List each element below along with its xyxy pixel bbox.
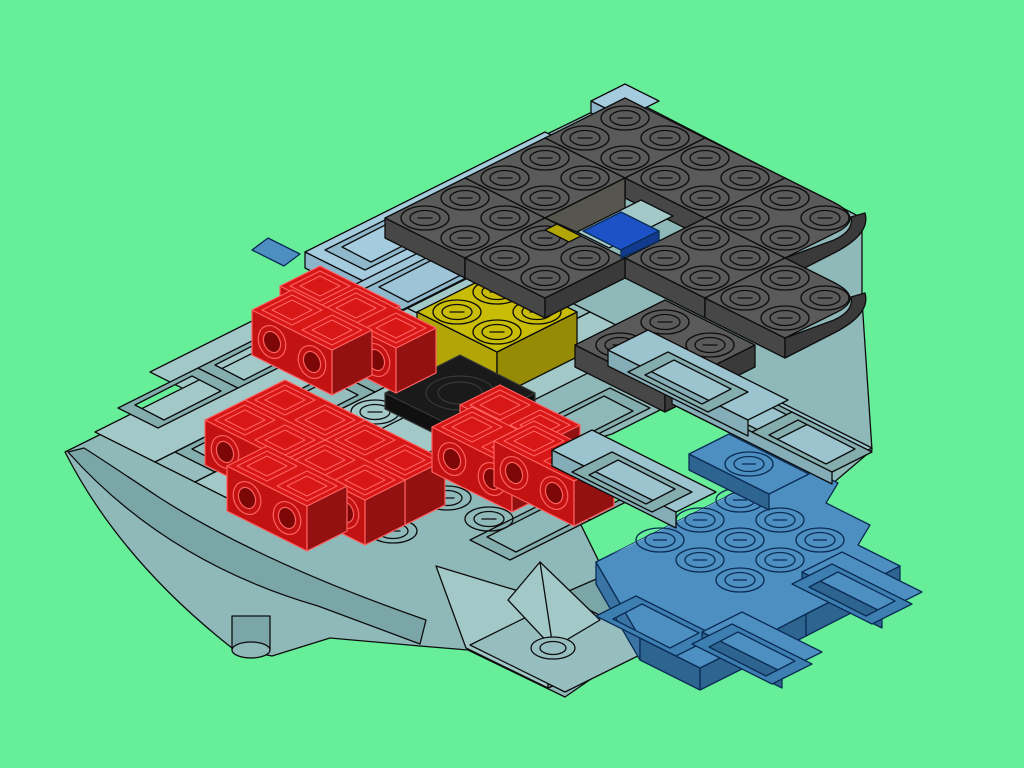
foot-cylinder bbox=[232, 616, 270, 658]
lego-render-stage: Isometric render of a partially built LE… bbox=[0, 0, 1024, 768]
keel-stud bbox=[531, 637, 575, 659]
scene-svg: Isometric render of a partially built LE… bbox=[0, 0, 1024, 768]
